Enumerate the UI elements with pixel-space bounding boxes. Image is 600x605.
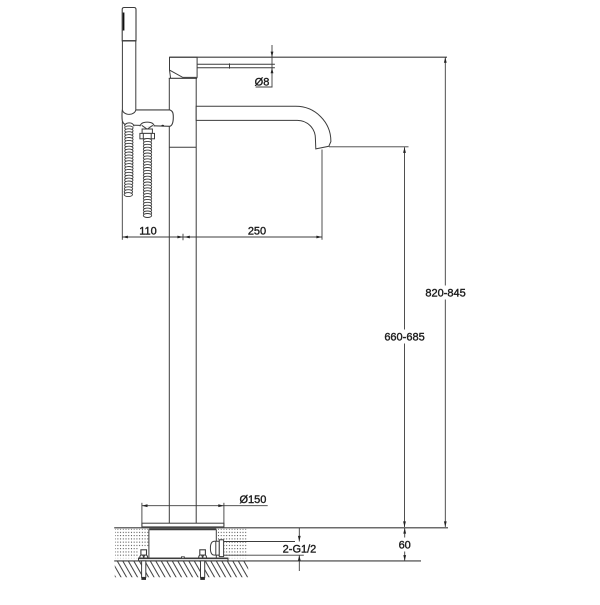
svg-text:60: 60 bbox=[399, 540, 411, 552]
svg-text:110: 110 bbox=[139, 225, 157, 237]
svg-text:2-G1/2: 2-G1/2 bbox=[283, 543, 317, 555]
svg-text:820-845: 820-845 bbox=[425, 288, 465, 300]
svg-text:660-685: 660-685 bbox=[384, 332, 424, 344]
svg-text:250: 250 bbox=[248, 225, 266, 237]
svg-text:Ø150: Ø150 bbox=[239, 494, 266, 506]
svg-text:Ø8: Ø8 bbox=[255, 76, 270, 88]
